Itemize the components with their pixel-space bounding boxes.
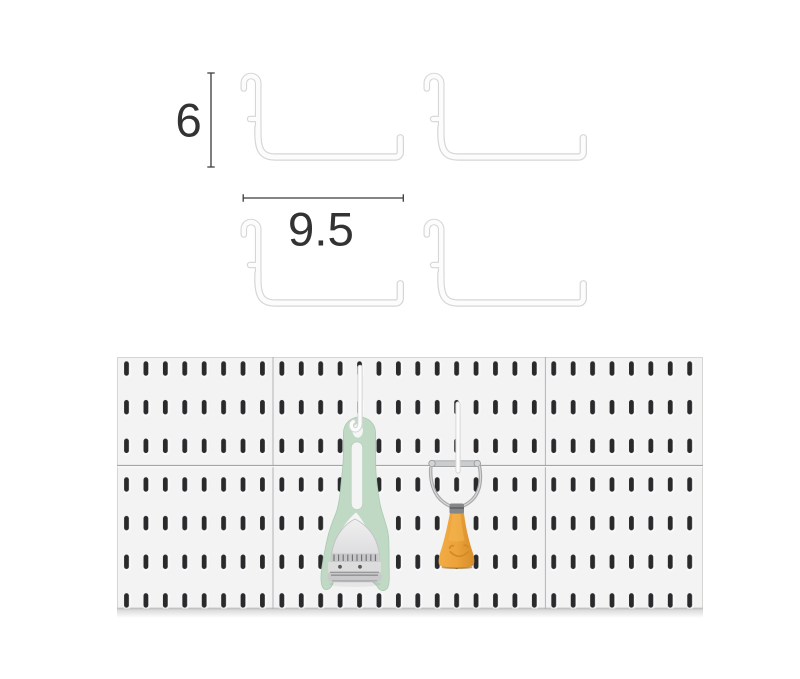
svg-text:6: 6 [175,94,201,147]
svg-text:9.5: 9.5 [288,204,354,257]
